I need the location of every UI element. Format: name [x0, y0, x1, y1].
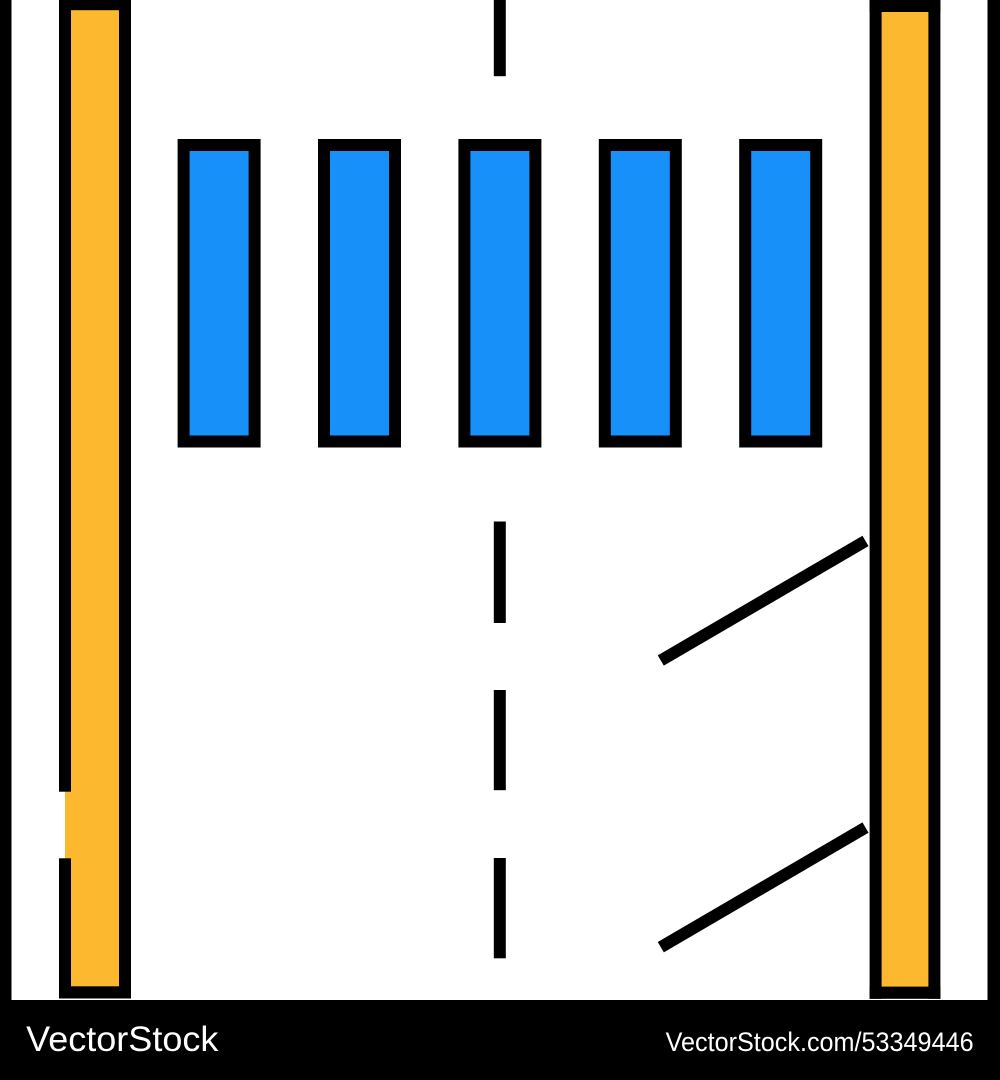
svg-text:VectorStock.com/53349446: VectorStock.com/53349446 [666, 1027, 974, 1057]
svg-text:VectorStock: VectorStock [26, 1019, 218, 1059]
